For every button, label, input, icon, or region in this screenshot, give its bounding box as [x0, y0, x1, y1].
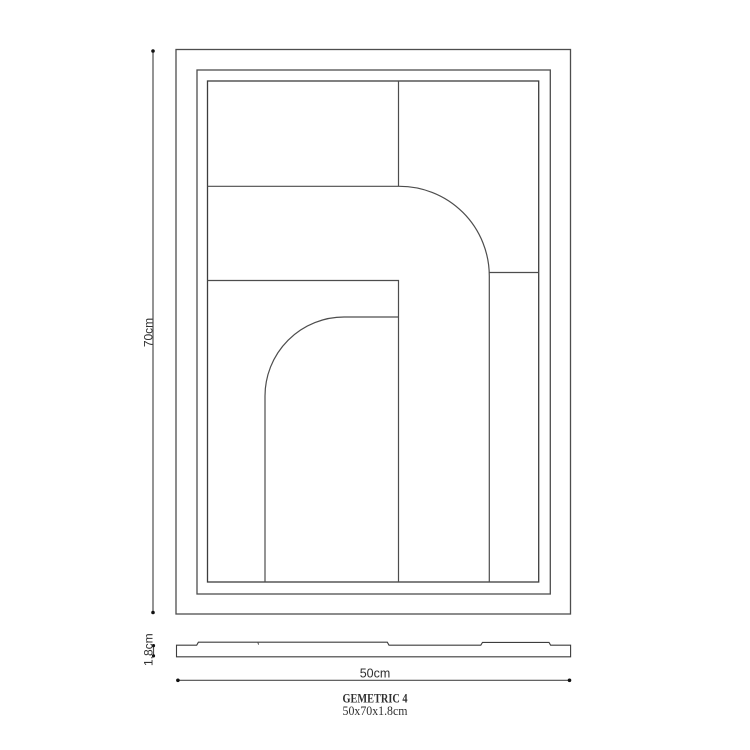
svg-text:50cm: 50cm	[360, 667, 391, 681]
svg-text:70cm: 70cm	[142, 318, 156, 347]
svg-text:50x70x1.8cm: 50x70x1.8cm	[343, 703, 408, 718]
svg-text:1.8cm: 1.8cm	[142, 633, 156, 666]
